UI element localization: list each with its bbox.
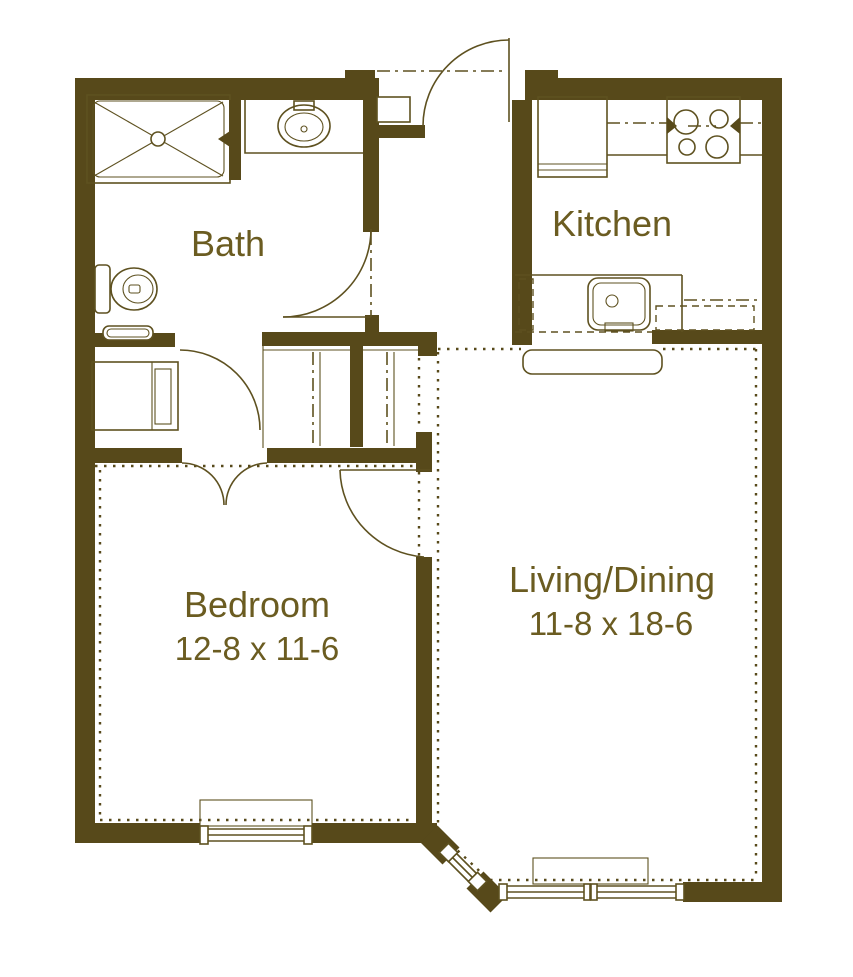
floor-plan-drawing: Bath Kitchen Bedroom 12-8 x 11-6 Living/… — [0, 0, 853, 977]
living-dining-dimensions: 11-8 x 18-6 — [529, 605, 693, 642]
room-labels: Bath Kitchen Bedroom 12-8 x 11-6 Living/… — [175, 203, 715, 667]
closet-left — [263, 346, 350, 448]
toilet — [95, 265, 157, 313]
burner — [674, 110, 698, 134]
shower — [87, 95, 241, 183]
floor-plan: Bath Kitchen Bedroom 12-8 x 11-6 Living/… — [0, 0, 853, 977]
burner — [710, 110, 728, 128]
kitchen-sink — [588, 278, 650, 331]
bedroom-dimensions: 12-8 x 11-6 — [175, 630, 339, 667]
walls — [75, 70, 782, 904]
burner — [679, 139, 695, 155]
bath-door — [283, 229, 371, 317]
closet-right — [363, 350, 418, 446]
kitchen-label: Kitchen — [552, 203, 672, 244]
bath-label: Bath — [191, 223, 265, 264]
window-sill-box — [200, 800, 312, 826]
breakfast-bar — [523, 350, 662, 374]
living-dining-label: Living/Dining — [509, 559, 715, 600]
washer-dryer — [92, 362, 178, 430]
bedroom-double-doors — [182, 463, 267, 505]
bay-window — [439, 843, 486, 890]
towel-shelf — [103, 326, 153, 340]
wall-niche — [377, 97, 410, 122]
bedroom-window — [200, 800, 312, 844]
burner — [706, 136, 728, 158]
refrigerator — [538, 97, 607, 177]
range-cooktop — [667, 97, 740, 163]
laundry-door — [180, 350, 260, 430]
bedroom-label: Bedroom — [184, 584, 330, 625]
shower-side-wall — [229, 100, 241, 180]
vanity-sink — [245, 100, 363, 153]
